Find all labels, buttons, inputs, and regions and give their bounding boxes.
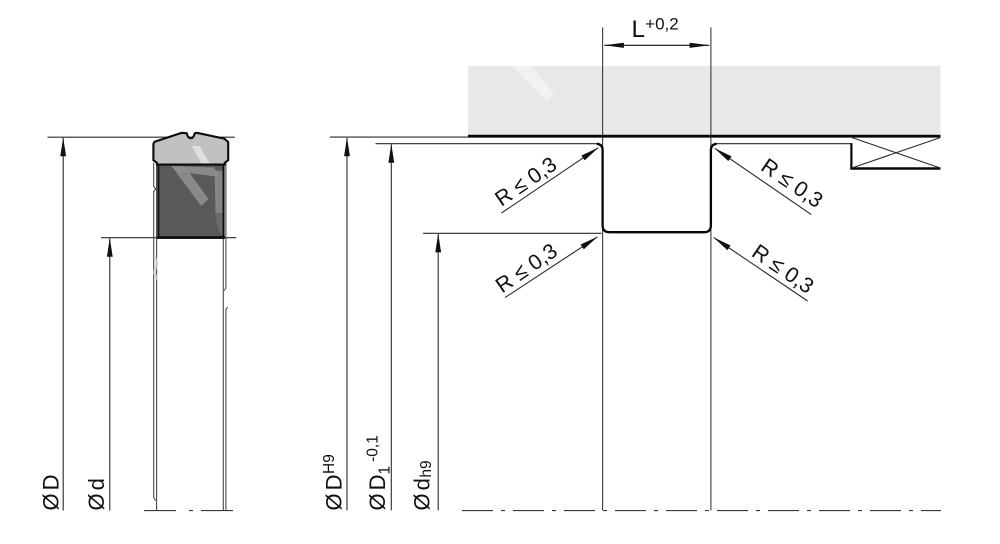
svg-text:Ød: Ød	[84, 478, 109, 510]
